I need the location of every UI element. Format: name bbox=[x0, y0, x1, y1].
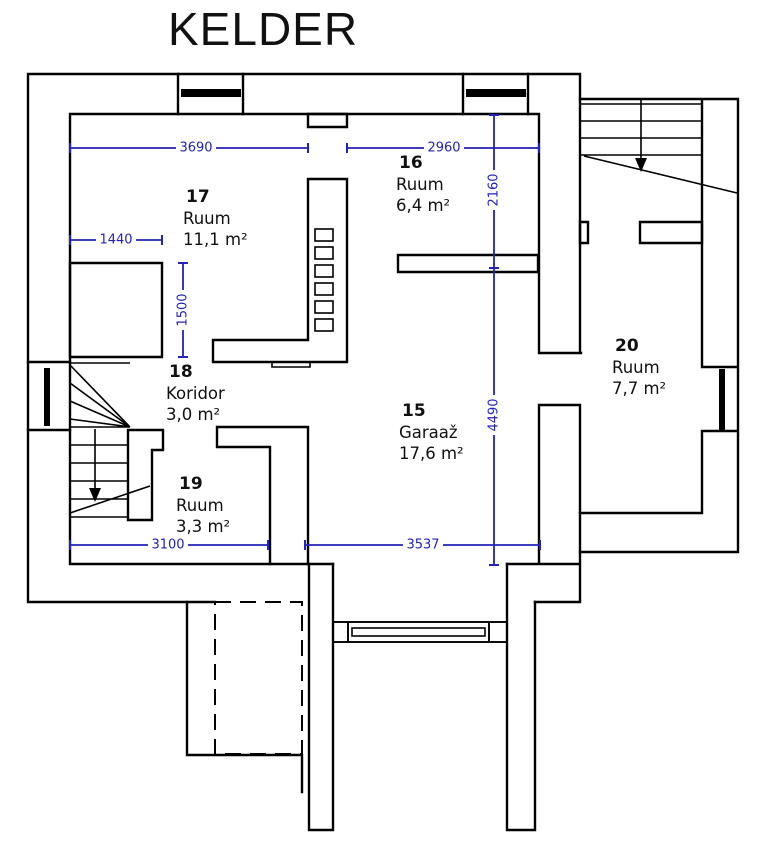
chimney-notch bbox=[272, 362, 310, 367]
window-north-right bbox=[466, 89, 526, 97]
floor-plan-drawing: 3690 2960 1440 3100 3537 2160 bbox=[0, 0, 773, 853]
exterior-staircase bbox=[580, 100, 737, 193]
room-label-18: 18 Koridor 3,0 m² bbox=[166, 362, 225, 425]
room19-garage-wall bbox=[217, 427, 308, 564]
garage-door bbox=[333, 622, 507, 642]
room-name: Ruum bbox=[396, 174, 450, 195]
exterior-stair-down-arrow bbox=[635, 158, 647, 172]
dim-closet-width: 1440 bbox=[99, 233, 132, 248]
stair-side-wall bbox=[128, 430, 163, 520]
room-area: 3,0 m² bbox=[166, 404, 225, 425]
interior-walls bbox=[70, 114, 538, 564]
room-label-20: 20 Ruum 7,7 m² bbox=[612, 336, 666, 399]
window-east-room20 bbox=[719, 369, 725, 430]
room-number: 20 bbox=[615, 336, 666, 357]
chimney-top-stub bbox=[308, 114, 347, 127]
room-area: 3,3 m² bbox=[176, 516, 230, 537]
room-label-19: 19 Ruum 3,3 m² bbox=[176, 474, 230, 537]
room-area: 11,1 m² bbox=[183, 229, 248, 250]
closet-block bbox=[70, 263, 162, 357]
room20-door-jamb bbox=[580, 222, 702, 243]
ramp-dashed-outline bbox=[215, 602, 302, 754]
extension-walls bbox=[580, 99, 738, 552]
dim-garage-depth: 4490 bbox=[487, 398, 502, 431]
room-label-16: 16 Ruum 6,4 m² bbox=[396, 153, 450, 216]
room-area: 17,6 m² bbox=[399, 443, 464, 464]
stair-down-arrow bbox=[89, 488, 101, 502]
dim-garage-width: 3537 bbox=[406, 538, 439, 553]
room-number: 17 bbox=[186, 187, 248, 208]
room-name: Garaaž bbox=[399, 422, 464, 443]
dim-room16-depth: 2160 bbox=[487, 173, 502, 206]
room-name: Ruum bbox=[612, 357, 666, 378]
room-area: 7,7 m² bbox=[612, 378, 666, 399]
interior-staircase bbox=[70, 363, 150, 517]
exterior-walls bbox=[28, 74, 581, 602]
room-number: 18 bbox=[169, 362, 225, 383]
window-north-left bbox=[181, 89, 241, 97]
floor-plan-page: KELDER bbox=[0, 0, 773, 853]
dim-room17-width: 3690 bbox=[179, 141, 212, 156]
room-label-15: 15 Garaaž 17,6 m² bbox=[399, 401, 464, 464]
driveway-walls bbox=[187, 564, 535, 830]
dim-closet-depth: 1500 bbox=[176, 293, 191, 326]
room-number: 15 bbox=[402, 401, 464, 422]
room-name: Ruum bbox=[176, 495, 230, 516]
room-number: 19 bbox=[179, 474, 230, 495]
room-area: 6,4 m² bbox=[396, 195, 450, 216]
room-name: Ruum bbox=[183, 208, 248, 229]
room-name: Koridor bbox=[166, 383, 225, 404]
chimney-flues bbox=[315, 229, 333, 331]
room-label-17: 17 Ruum 11,1 m² bbox=[183, 187, 248, 250]
window-west bbox=[44, 368, 50, 426]
dim-bottom-left-width: 3100 bbox=[151, 538, 184, 553]
room-number: 16 bbox=[399, 153, 450, 174]
room16-south-wall bbox=[398, 255, 538, 272]
